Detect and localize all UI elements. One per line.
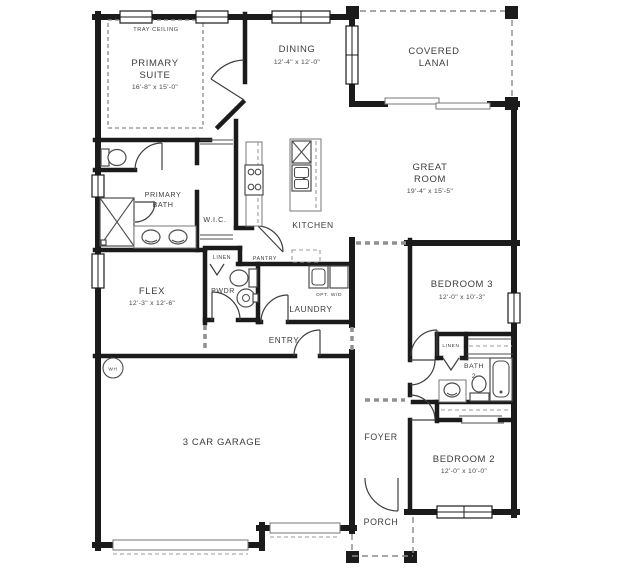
kitchen-island: [290, 139, 321, 211]
primary-suite-label: PRIMARY: [131, 58, 178, 69]
covered-lanai-label: LANAI: [419, 58, 449, 69]
kitchen-sink: [292, 165, 311, 191]
shower: [100, 198, 134, 246]
bedroom2-label: BEDROOM 2: [433, 454, 495, 465]
primary-suite-label: SUITE: [140, 70, 171, 81]
door-arc: [211, 60, 244, 100]
powder-label: PWDR: [211, 288, 235, 295]
bedroom2-dims: 12'-0" x 10'-0": [441, 468, 488, 475]
window: [437, 506, 492, 518]
primary-suite-dims: 16'-8" x 15'-0": [132, 84, 179, 91]
flex-label: FLEX: [139, 286, 165, 297]
door-arc: [365, 478, 398, 511]
water-heater-label: WH: [108, 367, 117, 373]
bath2-label: BATH: [464, 363, 484, 370]
great-room-dims: 19'-4" x 15'-5": [407, 188, 454, 195]
window: [120, 11, 152, 23]
door-arc: [261, 295, 288, 322]
dining-dims: 12'-4" x 12'-0": [274, 59, 321, 66]
bathtub: [490, 358, 512, 401]
floor-plan-drawing: TRAY CEILING PRIMARY SUITE 16'-8" x 15'-…: [0, 0, 617, 582]
entry-label: ENTRY: [269, 336, 300, 345]
tray-ceiling-label: TRAY CEILING: [133, 27, 179, 33]
wic-label: W.I.C.: [203, 215, 226, 224]
linen-bed-label: LINEN: [442, 343, 459, 349]
foyer-label: FOYER: [364, 432, 397, 442]
porch-label: PORCH: [364, 517, 399, 527]
window: [196, 11, 228, 23]
great-room-label: ROOM: [414, 174, 446, 185]
door-arc: [212, 292, 240, 320]
window: [92, 175, 104, 197]
vanity-double-sink: [134, 226, 196, 248]
cooktop: [245, 165, 263, 195]
washer-dryer: [309, 266, 348, 288]
covered-lanai-label: COVERED: [408, 46, 459, 57]
toilet: [101, 149, 126, 166]
window: [346, 26, 358, 84]
dining-label: DINING: [279, 44, 316, 55]
door-arc: [258, 226, 283, 252]
lanai-post: [346, 6, 359, 19]
pantry-label: PANTRY: [253, 256, 277, 262]
sliding-glass-door: [385, 98, 490, 109]
bedroom3-label: BEDROOM 3: [431, 279, 493, 290]
primary-bath-label: PRIMARY: [145, 190, 182, 199]
bifold-door: [210, 264, 224, 275]
great-room-label: GREAT: [412, 162, 447, 173]
primary-bath-label: BATH: [152, 200, 173, 209]
garage-label: 3 CAR GARAGE: [183, 437, 261, 448]
round-sink: [237, 289, 258, 307]
linen-hall-label: LINEN: [213, 255, 231, 261]
porch-post: [404, 551, 417, 563]
laundry-label: LAUNDRY: [289, 305, 332, 314]
door-arc: [410, 360, 435, 385]
door-arc: [411, 330, 437, 356]
window: [272, 11, 330, 23]
porch-post: [346, 551, 359, 563]
flex-dims: 12'-3" x 12'-6": [129, 300, 176, 307]
garage-door: [270, 523, 340, 537]
kitchen-counter: [245, 142, 263, 226]
bedroom3-dims: 12'-0" x 10'-3": [439, 294, 486, 301]
opt-wd-label: OPT. W/D: [316, 292, 342, 298]
garage-door: [113, 540, 248, 554]
bath2-label: 2: [472, 373, 476, 380]
window: [92, 254, 104, 288]
dishwasher: [292, 141, 311, 163]
floor-plan: TRAY CEILING PRIMARY SUITE 16'-8" x 15'-…: [0, 0, 617, 582]
bifold-door: [443, 358, 459, 370]
toilet: [230, 269, 257, 287]
lanai-post: [505, 97, 518, 110]
vanity-sink: [439, 380, 466, 402]
door-arc: [410, 395, 435, 420]
door-arc: [135, 143, 162, 170]
kitchen-label: KITCHEN: [292, 220, 334, 230]
window: [508, 293, 520, 323]
lanai-post: [505, 6, 518, 19]
